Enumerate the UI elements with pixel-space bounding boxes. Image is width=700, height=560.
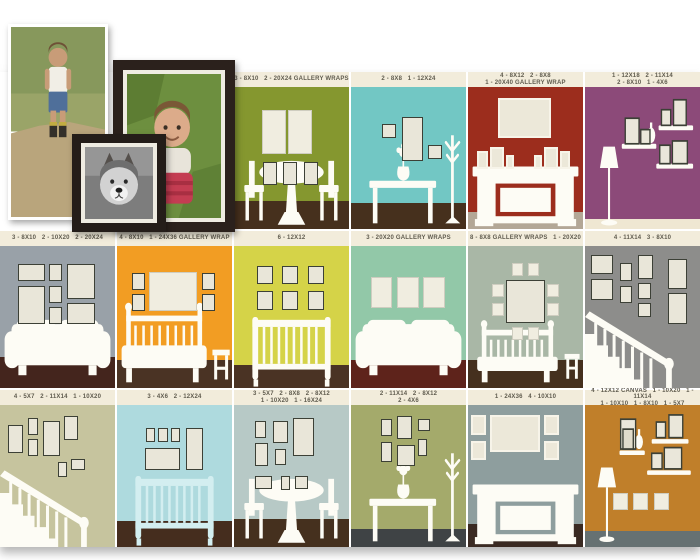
- picture-frame: [382, 124, 396, 138]
- picture-frame: [18, 264, 44, 281]
- shelvesP-furniture-illustration: [585, 87, 700, 229]
- panel-caption: 3 - 4X6 2 - 12X24: [117, 390, 232, 405]
- picture-frame: [471, 441, 486, 461]
- layout-panel-dining-olive: 3 - 8X10 2 - 20X24 GALLERY WRAPS: [234, 72, 349, 229]
- layout-panel-fireplace-red: 4 - 8X12 2 - 8X8 1 - 20X40 GALLERY WRAP: [468, 72, 583, 229]
- dog-photo-framed: [72, 134, 166, 232]
- picture-frame: [492, 303, 504, 316]
- picture-frame: [255, 421, 267, 438]
- panel-caption: 2 - 8X8 1 - 12X24: [351, 72, 466, 87]
- panel-caption: 2 - 11X14 2 - 8X12 2 - 4X6: [351, 390, 466, 405]
- layout-panel-sofa-gray: 3 - 8X10 2 - 10X20 2 - 20X24: [0, 231, 115, 388]
- layout-panel-bed-orange: 4 - 8X10 1 - 24X36 GALLERY WRAP: [117, 231, 232, 388]
- panel-wall: [585, 405, 700, 547]
- picture-frame: [18, 286, 44, 324]
- picture-frame: [490, 415, 541, 452]
- shelvesA-furniture-illustration: [585, 405, 700, 547]
- picture-frame: [528, 327, 540, 340]
- panel-wall: [117, 246, 232, 388]
- picture-frame: [308, 291, 324, 309]
- picture-frame: [149, 272, 197, 312]
- stairs-furniture-illustration: [0, 405, 115, 547]
- picture-frame: [255, 476, 272, 489]
- table-furniture-illustration: [234, 405, 349, 547]
- picture-frame: [654, 493, 669, 510]
- picture-frame: [282, 291, 298, 309]
- picture-frame: [397, 277, 419, 308]
- layout-panel-crib-blue: 3 - 4X6 2 - 12X24: [117, 390, 232, 547]
- picture-frame: [49, 307, 62, 324]
- picture-frame: [512, 327, 524, 340]
- picture-frame: [293, 418, 315, 456]
- layout-panel-bench-sage: 8 - 8X8 GALLERY WRAPS 1 - 20X20: [468, 231, 583, 388]
- picture-frame: [202, 294, 215, 311]
- panel-wall: [117, 405, 232, 547]
- picture-frame: [186, 428, 203, 471]
- picture-frame: [613, 493, 628, 510]
- picture-frame: [490, 147, 504, 170]
- picture-frame: [257, 291, 273, 309]
- picture-frame: [49, 286, 62, 303]
- picture-frame: [275, 449, 285, 465]
- picture-frame: [477, 151, 487, 169]
- panel-wall: [351, 246, 466, 388]
- panel-caption: 3 - 8X10 2 - 20X24 GALLERY WRAPS: [234, 72, 349, 87]
- picture-frame: [423, 277, 445, 308]
- picture-frame: [263, 162, 277, 185]
- panel-caption: 6 - 12X12: [234, 231, 349, 246]
- picture-frame: [381, 442, 393, 462]
- gallery-wall-layout-collage: 3 - 8X10 2 - 20X24 GALLERY WRAPS 2 - 8X8…: [0, 0, 700, 560]
- picture-frame: [67, 303, 96, 324]
- layout-panel-stairs-gray: 4 - 11X14 3 - 8X10: [585, 231, 700, 388]
- panel-wall: [585, 87, 700, 229]
- panel-caption: 1 - 24X36 4 - 10X10: [468, 390, 583, 405]
- picture-frame: [512, 263, 524, 276]
- layout-panel-console-olive: 2 - 11X14 2 - 8X12 2 - 4X6: [351, 390, 466, 547]
- picture-frame: [506, 155, 514, 169]
- panel-wall: [468, 405, 583, 547]
- picture-frame: [428, 145, 442, 159]
- cribBlue-furniture-illustration: [117, 405, 232, 547]
- picture-frame: [498, 98, 551, 138]
- picture-frame: [288, 110, 312, 154]
- picture-frame: [534, 155, 542, 169]
- picture-frame: [506, 280, 545, 323]
- picture-frame: [67, 264, 96, 298]
- picture-frame: [544, 147, 558, 170]
- picture-frame: [397, 416, 412, 439]
- picture-frame: [273, 421, 288, 444]
- sofa-furniture-illustration: [351, 246, 466, 388]
- panel-caption: 4 - 12X12 CANVAS 1 - 10X20 1 - 11X14 1 -…: [585, 390, 700, 405]
- panel-caption: 4 - 5X7 2 - 11X14 1 - 10X20: [0, 390, 115, 405]
- picture-frame: [402, 117, 424, 161]
- panel-wall: [468, 246, 583, 388]
- panel-wall: [351, 87, 466, 229]
- picture-frame: [295, 476, 308, 489]
- picture-frame: [145, 448, 181, 471]
- picture-frame: [418, 419, 431, 430]
- picture-frame: [146, 428, 155, 442]
- panel-wall: [234, 246, 349, 388]
- layout-panel-sofa-seafoam: 3 - 20X20 GALLERY WRAPS: [351, 231, 466, 388]
- layout-panel-shelves-amber: 4 - 12X12 CANVAS 1 - 10X20 1 - 11X14 1 -…: [585, 390, 700, 547]
- picture-frame: [492, 284, 504, 297]
- picture-frame: [132, 294, 145, 311]
- panel-wall: [234, 405, 349, 547]
- picture-frame: [471, 415, 486, 435]
- layout-panel-crib-chartreuse: 6 - 12X12: [234, 231, 349, 388]
- panel-wall: [234, 87, 349, 229]
- picture-frame: [132, 273, 145, 290]
- picture-frame: [544, 415, 559, 435]
- picture-frame: [633, 493, 648, 510]
- picture-frame: [308, 266, 324, 284]
- panel-wall: [468, 87, 583, 229]
- picture-frame: [281, 476, 290, 490]
- picture-frame: [158, 428, 167, 442]
- picture-frame: [397, 445, 415, 466]
- layout-panel-fireplace-slate: 1 - 24X36 4 - 10X10: [468, 390, 583, 547]
- panel-caption: 8 - 8X8 GALLERY WRAPS 1 - 20X20: [468, 231, 583, 246]
- layout-panel-dining-bluegray: 3 - 5X7 2 - 8X8 2 - 8X12 1 - 10X20 1 - 1…: [234, 390, 349, 547]
- picture-frame: [257, 266, 273, 284]
- picture-frame: [262, 110, 286, 154]
- panel-wall: [0, 405, 115, 547]
- panel-wall: [351, 405, 466, 547]
- layout-panel-console-teal: 2 - 8X8 1 - 12X24: [351, 72, 466, 229]
- picture-frame: [202, 273, 215, 290]
- picture-frame: [547, 284, 559, 297]
- layout-panel-stairs-khaki: 4 - 5X7 2 - 11X14 1 - 10X20: [0, 390, 115, 547]
- panel-caption: 3 - 5X7 2 - 8X8 2 - 8X12 1 - 10X20 1 - 1…: [234, 390, 349, 405]
- picture-frame: [547, 303, 559, 316]
- picture-frame: [371, 277, 393, 308]
- panel-wall: [585, 246, 700, 388]
- picture-frame: [282, 266, 298, 284]
- picture-frame: [171, 428, 180, 442]
- picture-frame: [544, 441, 559, 461]
- picture-frame: [418, 439, 427, 456]
- panel-caption: 4 - 8X12 2 - 8X8 1 - 20X40 GALLERY WRAP: [468, 72, 583, 87]
- picture-frame: [283, 162, 297, 185]
- picture-frame: [560, 151, 570, 169]
- bed-furniture-illustration: [117, 246, 232, 388]
- dog-photo-image: [85, 147, 153, 219]
- table-furniture-illustration: [234, 87, 349, 229]
- picture-frame: [304, 162, 318, 185]
- panel-caption: 1 - 12X18 2 - 11X14 2 - 8X10 1 - 4X6: [585, 72, 700, 87]
- stairs-furniture-illustration: [585, 246, 700, 388]
- panel-wall: [0, 246, 115, 388]
- panel-caption: 4 - 11X14 3 - 8X10: [585, 231, 700, 246]
- picture-frame: [255, 443, 269, 466]
- picture-frame: [528, 263, 540, 276]
- photo-collage: [6, 24, 238, 236]
- picture-frame: [381, 419, 393, 436]
- layout-panel-shelves-purple: 1 - 12X18 2 - 11X14 2 - 8X10 1 - 4X6: [585, 72, 700, 229]
- picture-frame: [49, 264, 62, 281]
- panel-caption: 3 - 20X20 GALLERY WRAPS: [351, 231, 466, 246]
